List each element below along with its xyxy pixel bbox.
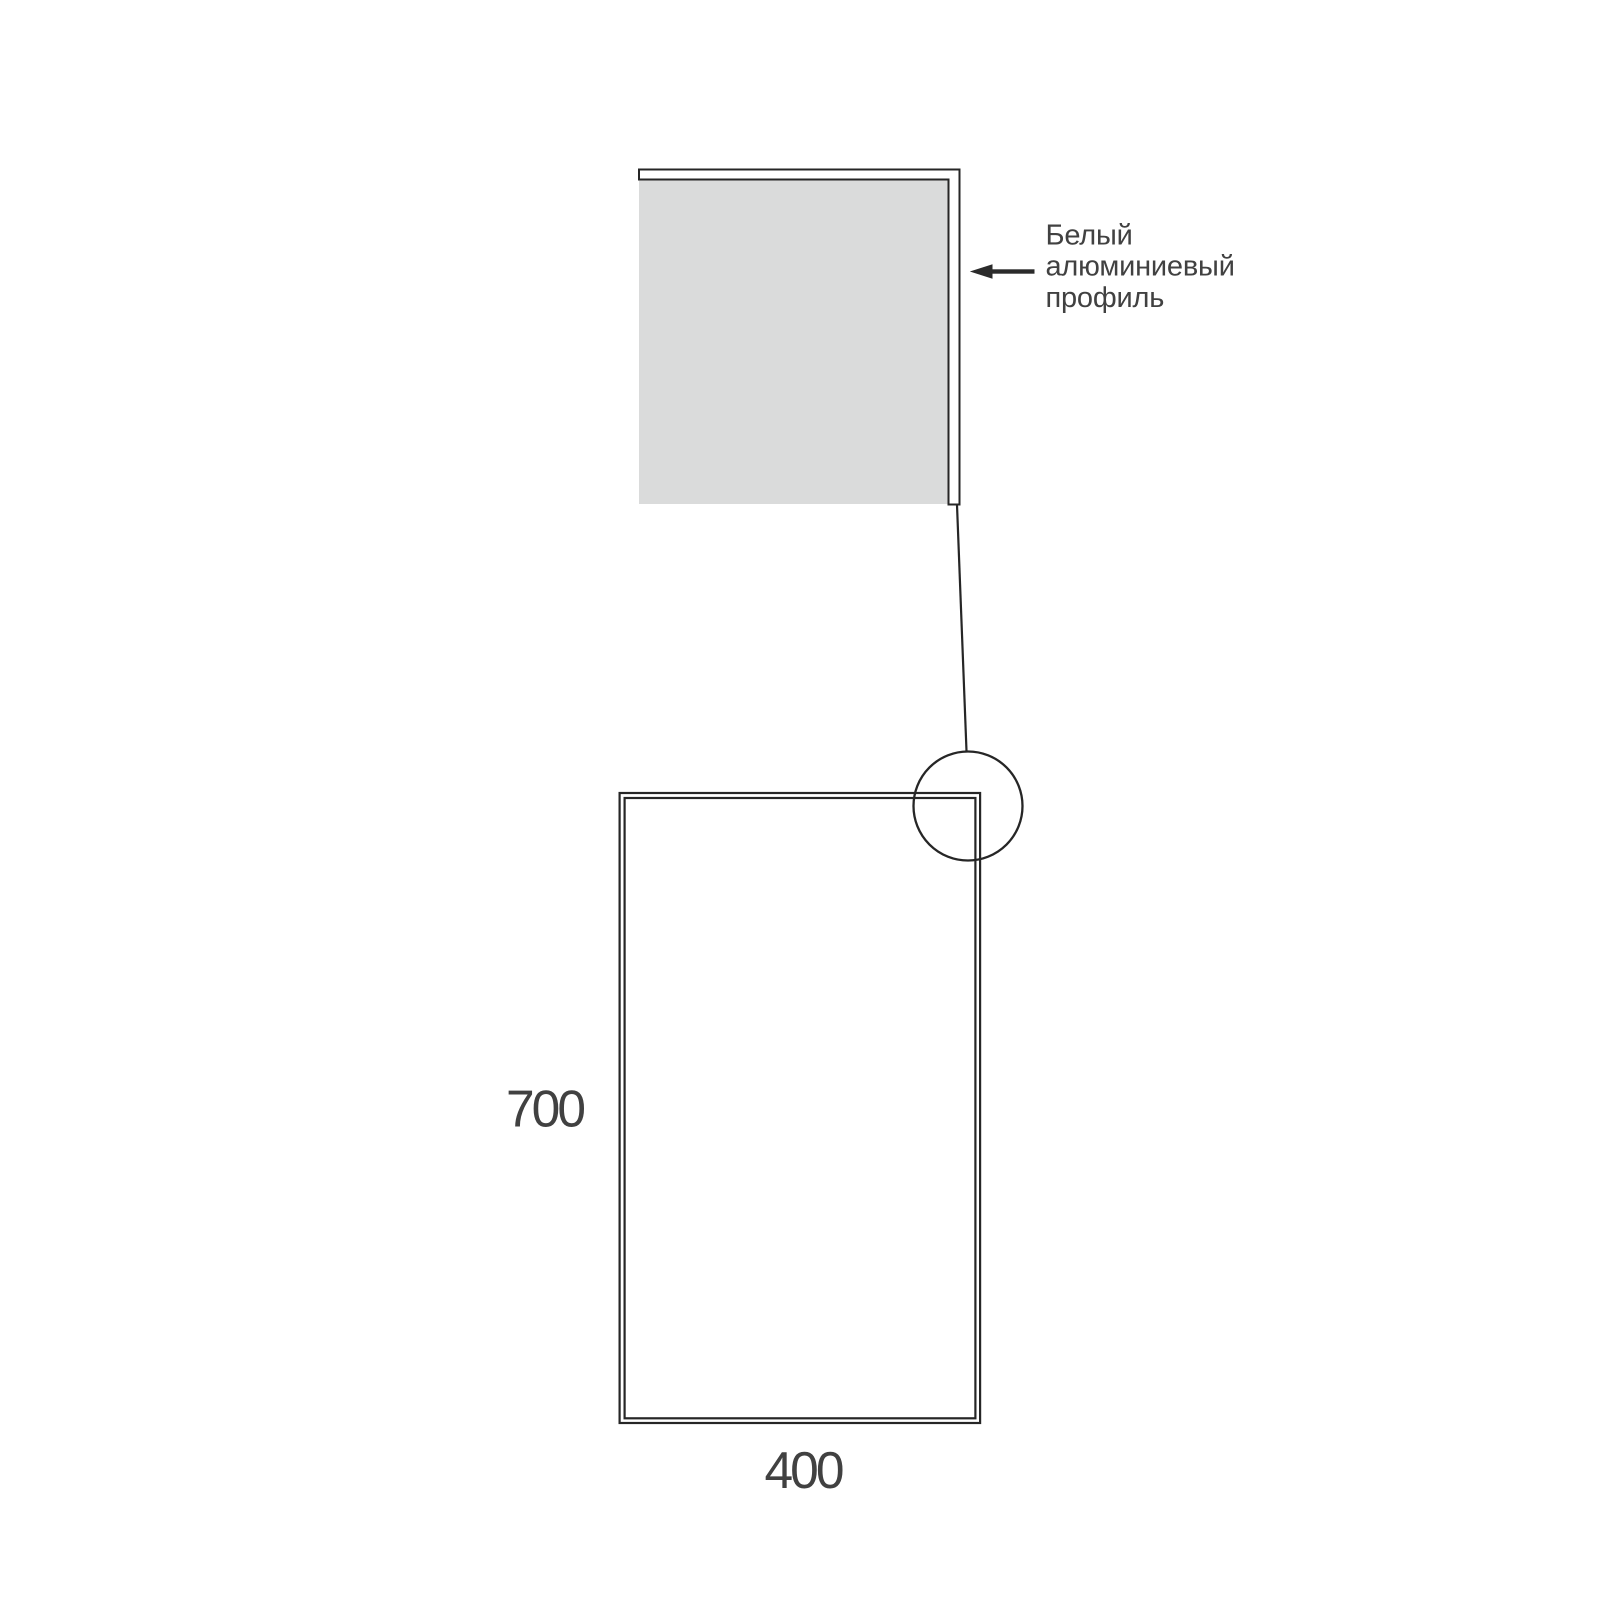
svg-text:профиль: профиль xyxy=(1046,282,1165,314)
svg-text:Белый: Белый xyxy=(1046,220,1133,252)
svg-text:400: 400 xyxy=(765,1441,843,1499)
svg-text:алюминиевый: алюминиевый xyxy=(1046,251,1235,283)
svg-text:700: 700 xyxy=(506,1080,584,1138)
